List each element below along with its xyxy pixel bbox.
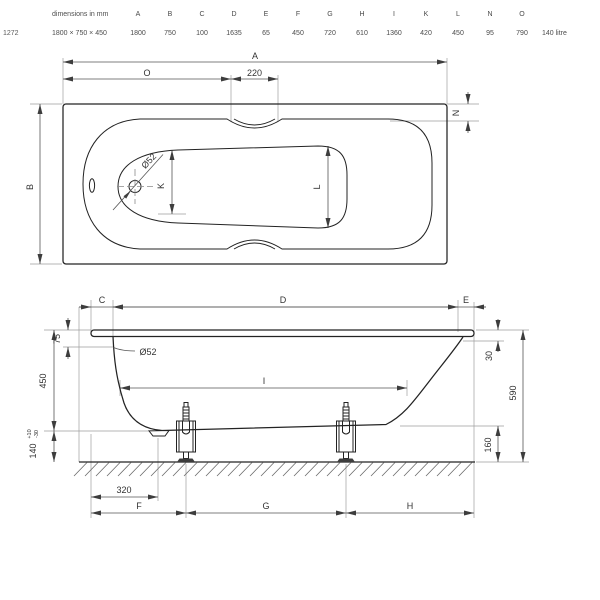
overflow-recess-top (234, 119, 275, 125)
overflow-hole (89, 179, 94, 193)
label-160: 160 (483, 437, 493, 452)
label-B: B (25, 184, 35, 190)
label-overflow-diameter: Ø52 (139, 347, 156, 357)
side-view: C D E 75 Ø52 450 I 30 590 160 140 +10 -3… (27, 295, 529, 518)
label-320: 320 (116, 485, 131, 495)
label-tolerance-minus: -30 (34, 430, 40, 438)
label-G: G (262, 501, 269, 511)
label-30: 30 (484, 351, 494, 361)
floor-hatch (74, 463, 472, 477)
tub-body-section (113, 337, 463, 431)
label-drain-diameter: Ø52 (139, 151, 158, 170)
overflow-recess-bottom (234, 243, 275, 249)
label-590: 590 (508, 385, 518, 400)
label-tolerance-plus: +10 (27, 429, 33, 438)
tub-rim-section (91, 330, 474, 337)
foot-left (177, 403, 196, 463)
label-E: E (463, 295, 469, 305)
label-450: 450 (38, 373, 48, 388)
bathtub-dimension-drawing: dimensions in mm A B C D E F G H I K L N… (0, 0, 600, 600)
label-H: H (407, 501, 414, 511)
label-C: C (99, 295, 106, 305)
label-N: N (451, 110, 461, 117)
drain-leader-line (113, 155, 163, 211)
label-D: D (280, 295, 287, 305)
drain-outlet (149, 431, 169, 437)
label-F: F (136, 501, 142, 511)
label-K: K (156, 183, 166, 189)
label-220: 220 (247, 68, 262, 78)
label-I: I (263, 376, 266, 386)
label-O: O (143, 68, 150, 78)
label-140: 140 (28, 443, 38, 458)
label-A: A (252, 51, 258, 61)
label-75: 75 (52, 334, 62, 344)
label-L: L (312, 184, 322, 189)
top-view: A O 220 B N K L Ø52 (25, 51, 479, 264)
overflow-leader-line (114, 348, 136, 352)
foot-right (337, 403, 356, 463)
technical-drawing: A O 220 B N K L Ø52 (0, 0, 600, 600)
